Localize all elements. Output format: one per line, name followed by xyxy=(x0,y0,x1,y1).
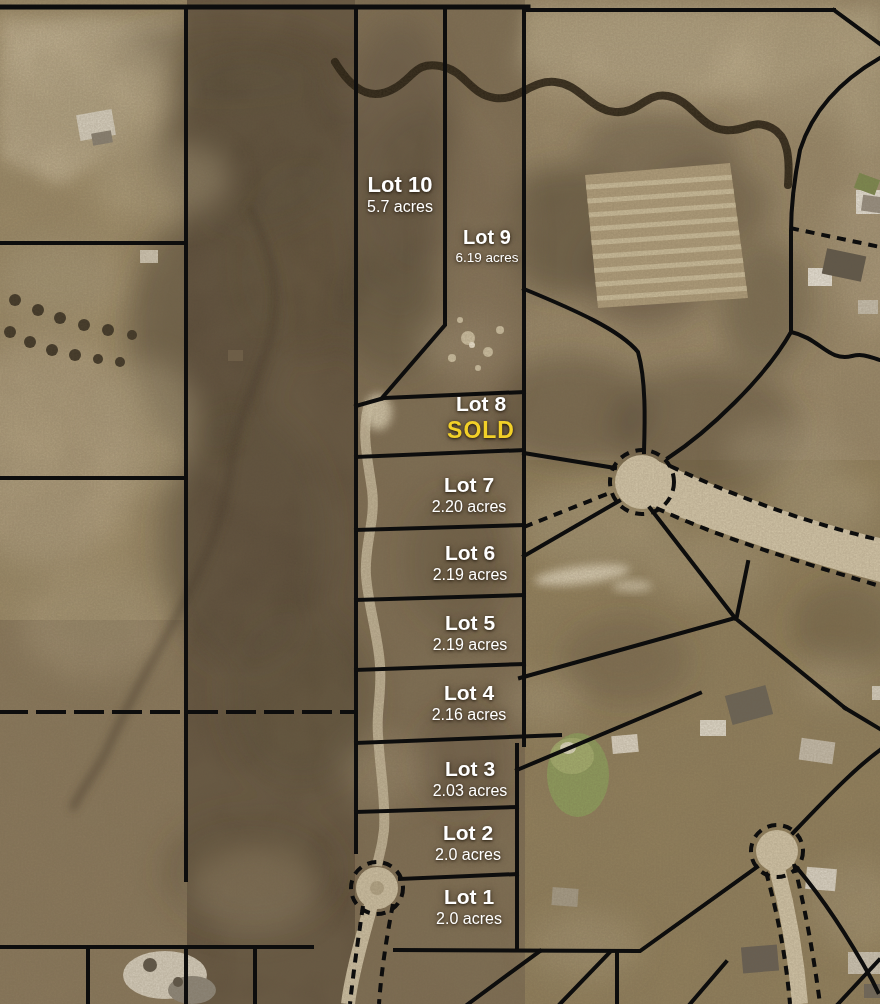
lot-2-acreage: 2.0 acres xyxy=(435,846,501,865)
lot-label-10: Lot 10 5.7 acres xyxy=(367,172,433,217)
lot-label-7: Lot 7 2.20 acres xyxy=(432,473,507,517)
lot-8-sold-badge: SOLD xyxy=(447,417,515,444)
lot-labels: Lot 10 5.7 acres Lot 9 6.19 acres Lot 8 … xyxy=(0,0,880,1004)
lot-10-name: Lot 10 xyxy=(367,172,433,198)
lot-9-name: Lot 9 xyxy=(455,226,518,250)
lot-9-acreage: 6.19 acres xyxy=(455,250,518,266)
plat-map: Lot 10 5.7 acres Lot 9 6.19 acres Lot 8 … xyxy=(0,0,880,1004)
lot-5-name: Lot 5 xyxy=(433,611,508,636)
lot-10-acreage: 5.7 acres xyxy=(367,198,433,217)
lot-6-name: Lot 6 xyxy=(433,541,508,566)
lot-7-name: Lot 7 xyxy=(432,473,507,498)
lot-4-acreage: 2.16 acres xyxy=(432,706,507,725)
lot-5-acreage: 2.19 acres xyxy=(433,636,508,655)
lot-label-8: Lot 8 SOLD xyxy=(447,392,515,444)
lot-3-acreage: 2.03 acres xyxy=(433,782,508,801)
lot-8-name: Lot 8 xyxy=(447,392,515,417)
lot-label-6: Lot 6 2.19 acres xyxy=(433,541,508,585)
lot-3-name: Lot 3 xyxy=(433,757,508,782)
lot-label-3: Lot 3 2.03 acres xyxy=(433,757,508,801)
lot-2-name: Lot 2 xyxy=(435,821,501,846)
lot-label-2: Lot 2 2.0 acres xyxy=(435,821,501,865)
lot-6-acreage: 2.19 acres xyxy=(433,566,508,585)
lot-4-name: Lot 4 xyxy=(432,681,507,706)
lot-7-acreage: 2.20 acres xyxy=(432,498,507,517)
lot-1-name: Lot 1 xyxy=(436,885,502,910)
lot-label-4: Lot 4 2.16 acres xyxy=(432,681,507,725)
lot-label-1: Lot 1 2.0 acres xyxy=(436,885,502,929)
lot-1-acreage: 2.0 acres xyxy=(436,910,502,929)
lot-label-9: Lot 9 6.19 acres xyxy=(455,226,518,266)
lot-label-5: Lot 5 2.19 acres xyxy=(433,611,508,655)
